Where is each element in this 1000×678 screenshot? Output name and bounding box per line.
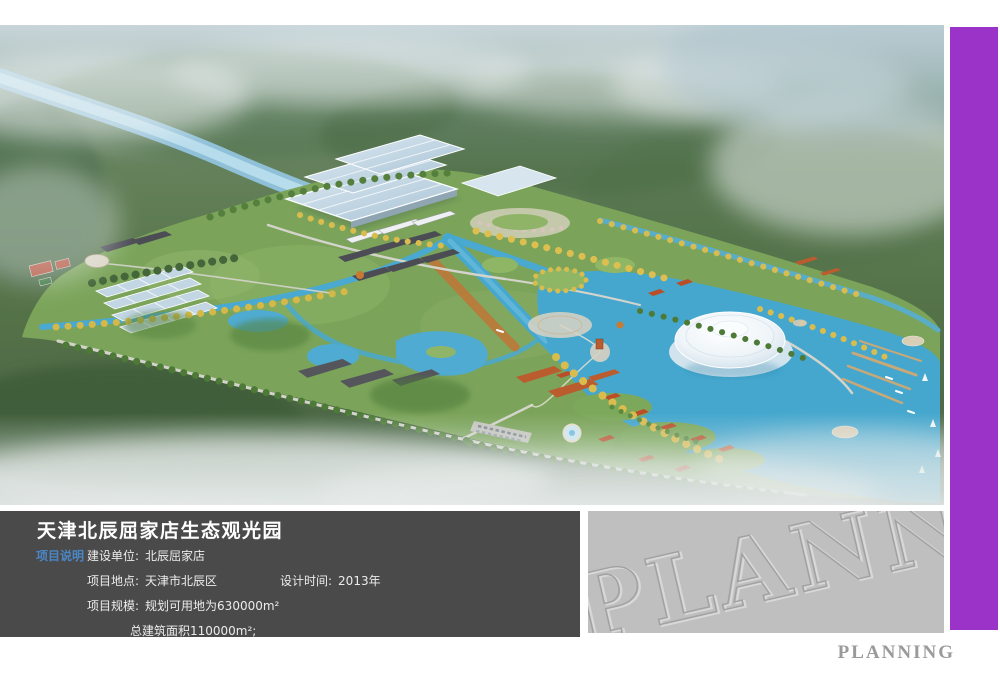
- watermark-panel: PLANNING PLANNING: [588, 511, 944, 633]
- watermark-svg: PLANNING PLANNING: [588, 511, 944, 633]
- watermark-text: PLANNING: [588, 511, 944, 633]
- scale-label: 项目规模:: [87, 599, 139, 613]
- accent-bar: [950, 27, 998, 630]
- presentation-page: 天津北辰屈家店生态观光园 项目说明 建设单位:北辰屈家店 项目地点:天津市北辰区…: [0, 0, 1000, 678]
- aerial-rendering-svg: [0, 25, 944, 505]
- location-value: 天津市北辰区: [145, 574, 217, 588]
- section-label: 项目说明: [36, 547, 84, 564]
- owner-value: 北辰屈家店: [145, 549, 205, 563]
- info-row: 项目规模:规划可用地为630000m²: [0, 597, 580, 613]
- page-title: 天津北辰屈家店生态观光园: [37, 516, 283, 543]
- design-time-label: 设计时间:: [280, 574, 332, 588]
- dome-roof: [675, 312, 785, 368]
- tower-building: [596, 339, 603, 349]
- scale-value: 规划可用地为630000m²: [145, 599, 279, 613]
- location-label: 项目地点:: [87, 574, 139, 588]
- footer-brand: PLANNING: [838, 642, 955, 664]
- info-row: 总建筑面积110000m²;: [0, 622, 580, 638]
- floor-area-value: 总建筑面积110000m²;: [130, 622, 256, 639]
- design-time-value: 2013年: [338, 574, 381, 588]
- project-info-panel: 天津北辰屈家店生态观光园 项目说明 建设单位:北辰屈家店 项目地点:天津市北辰区…: [0, 511, 580, 637]
- circular-pad: [902, 336, 924, 346]
- info-row: 项目说明 建设单位:北辰屈家店: [0, 547, 580, 563]
- owner-label: 建设单位:: [87, 549, 139, 563]
- info-row: 项目地点:天津市北辰区 设计时间:2013年: [0, 572, 580, 588]
- aerial-rendering: [0, 25, 944, 505]
